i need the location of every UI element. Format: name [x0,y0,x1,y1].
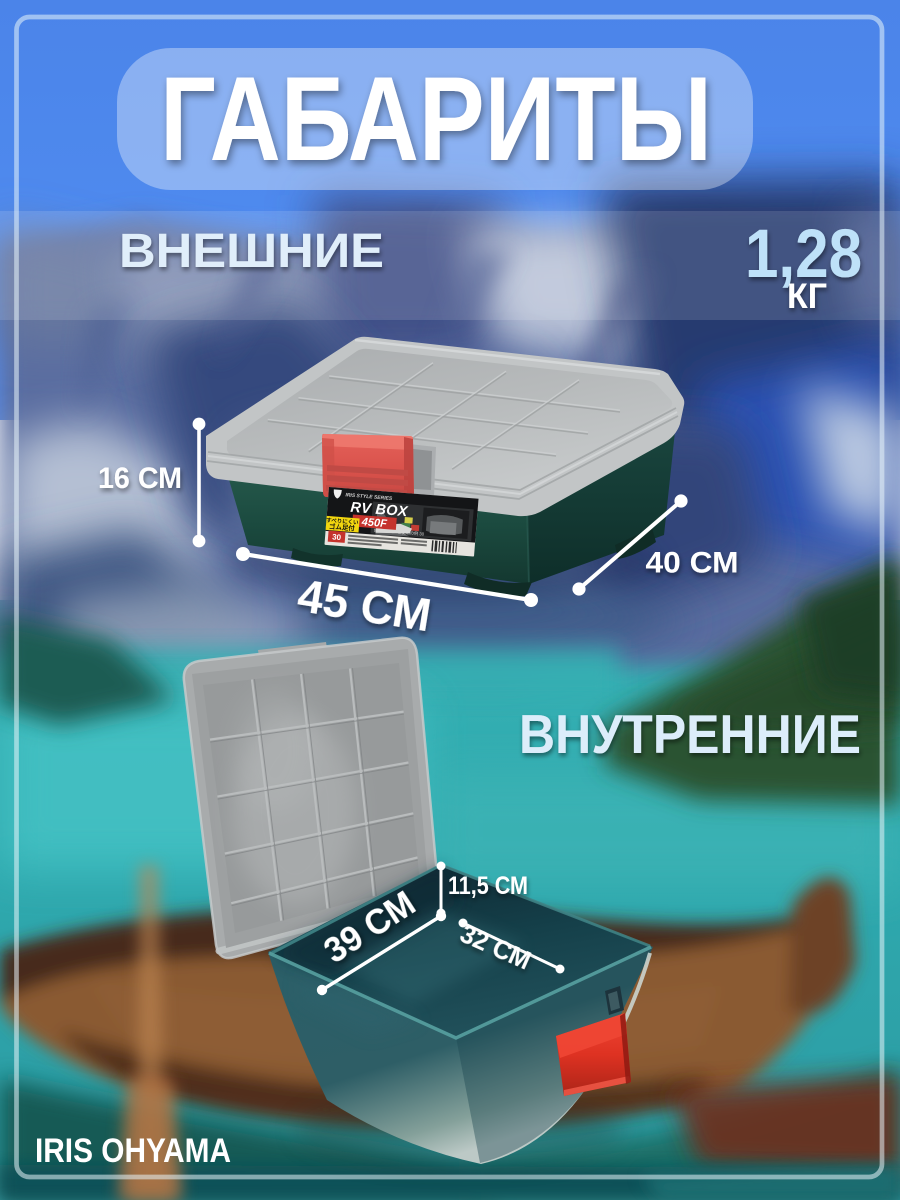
svg-text:ВНЕШНИЕ: ВНЕШНИЕ [119,224,384,278]
svg-text:ВНУТРЕННИЕ: ВНУТРЕННИЕ [519,703,861,765]
svg-text:КГ: КГ [787,276,827,316]
svg-text:30: 30 [332,532,342,542]
svg-text:IRIS OHYAMA: IRIS OHYAMA [35,1132,231,1170]
svg-text:40 СМ: 40 СМ [646,547,739,580]
svg-text:11,5 СМ: 11,5 СМ [448,872,528,900]
svg-text:ГАБАРИТЫ: ГАБАРИТЫ [160,52,712,186]
svg-text:16 СМ: 16 СМ [98,462,182,495]
